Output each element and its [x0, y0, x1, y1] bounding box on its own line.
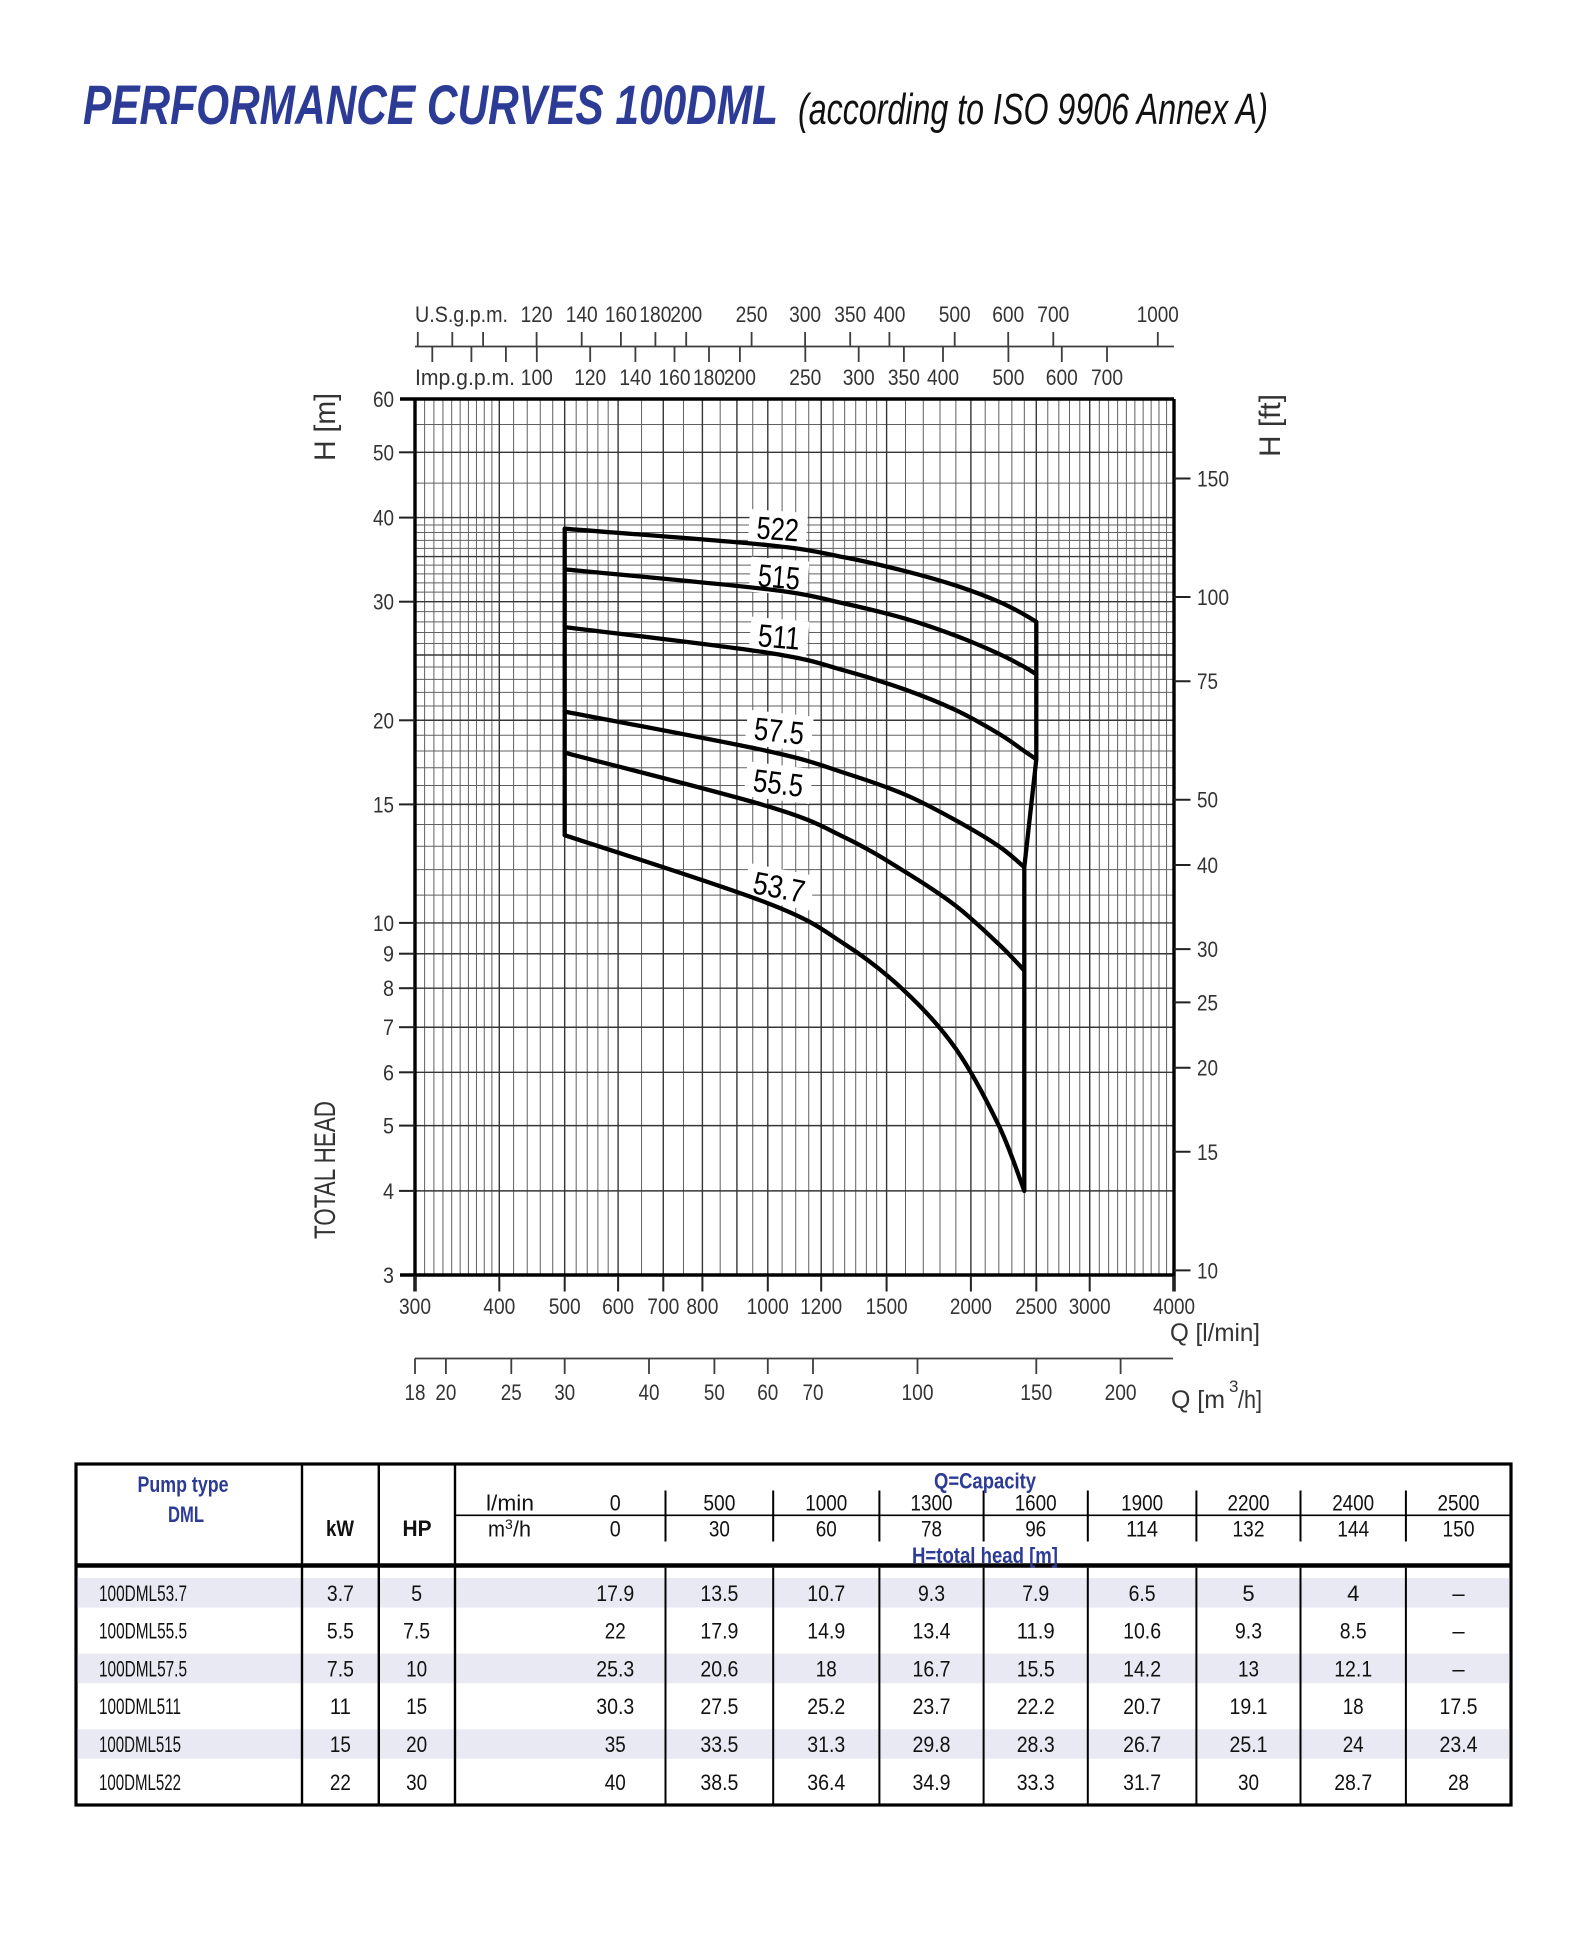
svg-text:50: 50 — [373, 440, 394, 465]
svg-text:100DML53.7: 100DML53.7 — [99, 1581, 187, 1606]
svg-text:400: 400 — [873, 302, 905, 327]
svg-text:26.7: 26.7 — [1123, 1732, 1161, 1757]
svg-text:100DML55.5: 100DML55.5 — [99, 1619, 187, 1644]
svg-text:25: 25 — [1197, 990, 1218, 1015]
svg-text:TOTAL HEAD: TOTAL HEAD — [309, 1101, 342, 1239]
svg-text:78: 78 — [921, 1517, 942, 1542]
svg-text:300: 300 — [789, 302, 821, 327]
svg-text:96: 96 — [1025, 1517, 1046, 1542]
svg-text:22.2: 22.2 — [1017, 1694, 1055, 1719]
svg-text:31.3: 31.3 — [807, 1732, 845, 1757]
svg-text:kW: kW — [326, 1516, 354, 1541]
svg-text:(according to ISO 9906 Annex A: (according to ISO 9906 Annex A) — [798, 85, 1268, 134]
svg-text:300: 300 — [843, 365, 875, 390]
svg-text:Imp.g.p.m.: Imp.g.p.m. — [415, 365, 515, 390]
svg-text:28.3: 28.3 — [1017, 1732, 1055, 1757]
svg-text:10: 10 — [406, 1656, 427, 1681]
svg-text:10.6: 10.6 — [1123, 1619, 1161, 1644]
svg-text:20.7: 20.7 — [1123, 1694, 1161, 1719]
svg-text:11.9: 11.9 — [1017, 1619, 1055, 1644]
svg-text:17.5: 17.5 — [1440, 1694, 1478, 1719]
svg-text:–: – — [1452, 1656, 1465, 1681]
svg-text:10: 10 — [373, 911, 394, 936]
svg-text:27.5: 27.5 — [700, 1694, 738, 1719]
svg-text:20: 20 — [435, 1380, 456, 1405]
svg-text:144: 144 — [1337, 1517, 1369, 1542]
svg-text:4: 4 — [383, 1179, 394, 1204]
svg-text:H [ft]: H [ft] — [1254, 394, 1287, 457]
svg-text:1300: 1300 — [911, 1491, 953, 1516]
svg-text:55.5: 55.5 — [751, 762, 805, 804]
svg-text:1900: 1900 — [1121, 1491, 1163, 1516]
svg-text:35: 35 — [605, 1732, 626, 1757]
svg-text:36.4: 36.4 — [807, 1770, 845, 1795]
svg-text:140: 140 — [619, 365, 651, 390]
svg-text:1600: 1600 — [1015, 1491, 1057, 1516]
svg-text:60: 60 — [373, 387, 394, 412]
svg-text:500: 500 — [703, 1491, 735, 1516]
svg-text:700: 700 — [647, 1294, 679, 1319]
svg-text:20.6: 20.6 — [700, 1656, 738, 1681]
svg-text:2500: 2500 — [1438, 1491, 1480, 1516]
svg-text:m: m — [488, 1517, 505, 1542]
svg-text:25: 25 — [501, 1380, 522, 1405]
svg-text:100DML57.5: 100DML57.5 — [99, 1656, 187, 1681]
svg-text:3.7: 3.7 — [327, 1581, 354, 1606]
svg-text:132: 132 — [1233, 1517, 1265, 1542]
svg-text:40: 40 — [639, 1380, 660, 1405]
svg-text:2000: 2000 — [950, 1294, 992, 1319]
svg-text:6.5: 6.5 — [1129, 1581, 1156, 1606]
svg-text:15: 15 — [1197, 1140, 1218, 1165]
svg-text:100DML522: 100DML522 — [99, 1770, 181, 1795]
svg-text:60: 60 — [757, 1380, 778, 1405]
svg-text:30: 30 — [554, 1380, 575, 1405]
svg-text:22: 22 — [605, 1619, 626, 1644]
svg-text:600: 600 — [1046, 365, 1078, 390]
svg-text:1000: 1000 — [1137, 302, 1179, 327]
svg-text:160: 160 — [659, 365, 691, 390]
svg-text:30: 30 — [1238, 1770, 1259, 1795]
svg-text:5.5: 5.5 — [327, 1619, 354, 1644]
svg-text:300: 300 — [399, 1294, 431, 1319]
svg-text:15: 15 — [373, 792, 394, 817]
svg-text:30: 30 — [406, 1770, 427, 1795]
svg-text:4: 4 — [1347, 1581, 1359, 1606]
svg-text:l/min: l/min — [486, 1491, 534, 1516]
svg-text:250: 250 — [789, 365, 821, 390]
svg-text:800: 800 — [686, 1294, 718, 1319]
svg-text:400: 400 — [483, 1294, 515, 1319]
svg-text:75: 75 — [1197, 669, 1218, 694]
svg-text:5: 5 — [383, 1114, 394, 1139]
svg-text:100: 100 — [902, 1380, 934, 1405]
svg-text:25.2: 25.2 — [807, 1694, 845, 1719]
svg-text:200: 200 — [724, 365, 756, 390]
svg-text:13: 13 — [1238, 1656, 1259, 1681]
svg-text:DML: DML — [168, 1502, 204, 1527]
svg-text:13.5: 13.5 — [700, 1581, 738, 1606]
svg-text:33.3: 33.3 — [1017, 1770, 1055, 1795]
svg-text:29.8: 29.8 — [913, 1732, 951, 1757]
svg-text:8.5: 8.5 — [1340, 1619, 1367, 1644]
svg-text:9: 9 — [383, 942, 394, 967]
svg-text:60: 60 — [816, 1517, 837, 1542]
svg-text:500: 500 — [549, 1294, 581, 1319]
svg-text:15: 15 — [406, 1694, 427, 1719]
svg-text:100: 100 — [1197, 585, 1229, 610]
svg-text:19.1: 19.1 — [1230, 1694, 1268, 1719]
svg-text:40: 40 — [1197, 853, 1218, 878]
svg-text:0: 0 — [610, 1517, 621, 1542]
svg-text:25.3: 25.3 — [596, 1656, 634, 1681]
svg-text:40: 40 — [605, 1770, 626, 1795]
svg-text:31.7: 31.7 — [1123, 1770, 1161, 1795]
svg-text:5: 5 — [411, 1581, 422, 1606]
svg-text:H=total head [m]: H=total head [m] — [912, 1543, 1058, 1568]
svg-text:20: 20 — [1197, 1056, 1218, 1081]
svg-text:/h: /h — [513, 1517, 531, 1542]
svg-text:–: – — [1452, 1581, 1465, 1606]
svg-text:14.2: 14.2 — [1123, 1656, 1161, 1681]
svg-text:150: 150 — [1197, 467, 1229, 492]
svg-text:7.9: 7.9 — [1022, 1581, 1049, 1606]
svg-text:15.5: 15.5 — [1017, 1656, 1055, 1681]
svg-text:30: 30 — [1197, 937, 1218, 962]
svg-text:22: 22 — [330, 1770, 351, 1795]
svg-text:180: 180 — [639, 302, 671, 327]
svg-text:18: 18 — [405, 1380, 426, 1405]
svg-text:114: 114 — [1126, 1517, 1158, 1542]
svg-text:350: 350 — [888, 365, 920, 390]
svg-text:28: 28 — [1448, 1770, 1469, 1795]
svg-text:14.9: 14.9 — [807, 1619, 845, 1644]
svg-text:2200: 2200 — [1228, 1491, 1270, 1516]
svg-text:400: 400 — [927, 365, 959, 390]
svg-text:11: 11 — [330, 1694, 351, 1719]
svg-text:13.4: 13.4 — [913, 1619, 951, 1644]
svg-text:100DML511: 100DML511 — [99, 1694, 181, 1719]
svg-text:38.5: 38.5 — [700, 1770, 738, 1795]
svg-text:U.S.g.p.m.: U.S.g.p.m. — [415, 302, 508, 327]
svg-text:17.9: 17.9 — [700, 1619, 738, 1644]
svg-text:1500: 1500 — [866, 1294, 908, 1319]
svg-text:30.3: 30.3 — [596, 1694, 634, 1719]
svg-text:10: 10 — [1197, 1258, 1218, 1283]
svg-text:–: – — [1452, 1619, 1465, 1644]
svg-text:9.3: 9.3 — [1235, 1619, 1262, 1644]
svg-text:100: 100 — [521, 365, 553, 390]
svg-text:7.5: 7.5 — [403, 1619, 430, 1644]
svg-text:140: 140 — [566, 302, 598, 327]
svg-text:7: 7 — [383, 1015, 394, 1040]
svg-text:1200: 1200 — [800, 1294, 842, 1319]
svg-text:700: 700 — [1037, 302, 1069, 327]
svg-text:1000: 1000 — [805, 1491, 847, 1516]
svg-text:20: 20 — [406, 1732, 427, 1757]
svg-text:5: 5 — [1242, 1581, 1254, 1606]
svg-text:2400: 2400 — [1332, 1491, 1374, 1516]
svg-text:4000: 4000 — [1153, 1294, 1195, 1319]
svg-text:120: 120 — [574, 365, 606, 390]
svg-text:250: 250 — [736, 302, 768, 327]
svg-text:Pump type: Pump type — [138, 1472, 229, 1497]
svg-text:30: 30 — [373, 590, 394, 615]
svg-text:100DML515: 100DML515 — [99, 1732, 181, 1757]
svg-text:200: 200 — [670, 302, 702, 327]
svg-text:50: 50 — [1197, 788, 1218, 813]
svg-text:160: 160 — [605, 302, 637, 327]
svg-text:700: 700 — [1091, 365, 1123, 390]
svg-text:PERFORMANCE CURVES 100DML: PERFORMANCE CURVES 100DML — [83, 73, 778, 136]
svg-text:150: 150 — [1443, 1517, 1475, 1542]
svg-text:33.5: 33.5 — [700, 1732, 738, 1757]
svg-text:120: 120 — [521, 302, 553, 327]
svg-text:9.3: 9.3 — [918, 1581, 945, 1606]
svg-text:23.4: 23.4 — [1440, 1732, 1478, 1757]
svg-text:8: 8 — [383, 976, 394, 1001]
svg-text:25.1: 25.1 — [1230, 1732, 1268, 1757]
svg-text:17.9: 17.9 — [596, 1581, 634, 1606]
svg-text:500: 500 — [992, 365, 1024, 390]
svg-text:50: 50 — [704, 1380, 725, 1405]
svg-text:16.7: 16.7 — [913, 1656, 951, 1681]
svg-text:57.5: 57.5 — [752, 711, 805, 752]
svg-text:30: 30 — [709, 1517, 730, 1542]
svg-text:24: 24 — [1343, 1732, 1364, 1757]
svg-text:350: 350 — [834, 302, 866, 327]
svg-text:Q [m: Q [m — [1171, 1386, 1225, 1414]
svg-text:23.7: 23.7 — [913, 1694, 951, 1719]
svg-text:7.5: 7.5 — [327, 1656, 354, 1681]
svg-text:34.9: 34.9 — [913, 1770, 951, 1795]
svg-text:HP: HP — [403, 1516, 432, 1541]
svg-text:10.7: 10.7 — [807, 1581, 845, 1606]
svg-text:150: 150 — [1020, 1380, 1052, 1405]
svg-text:3: 3 — [383, 1263, 394, 1288]
svg-text:20: 20 — [373, 708, 394, 733]
svg-text:500: 500 — [939, 302, 971, 327]
svg-text:12.1: 12.1 — [1334, 1656, 1372, 1681]
svg-text:/h]: /h] — [1238, 1386, 1262, 1414]
svg-text:600: 600 — [602, 1294, 634, 1319]
svg-text:180: 180 — [693, 365, 725, 390]
svg-text:3: 3 — [505, 1516, 513, 1532]
svg-text:6: 6 — [383, 1060, 394, 1085]
svg-text:18: 18 — [1343, 1694, 1364, 1719]
svg-text:40: 40 — [373, 506, 394, 531]
svg-text:15: 15 — [330, 1732, 351, 1757]
svg-text:18: 18 — [816, 1656, 837, 1681]
svg-text:2500: 2500 — [1015, 1294, 1057, 1319]
svg-text:28.7: 28.7 — [1334, 1770, 1372, 1795]
svg-text:1000: 1000 — [747, 1294, 789, 1319]
svg-text:H [m]: H [m] — [309, 393, 342, 461]
svg-text:Q [l/min]: Q [l/min] — [1170, 1319, 1260, 1347]
svg-text:3000: 3000 — [1069, 1294, 1111, 1319]
svg-text:70: 70 — [803, 1380, 824, 1405]
svg-text:0: 0 — [610, 1491, 621, 1516]
svg-text:600: 600 — [992, 302, 1024, 327]
svg-text:200: 200 — [1105, 1380, 1137, 1405]
